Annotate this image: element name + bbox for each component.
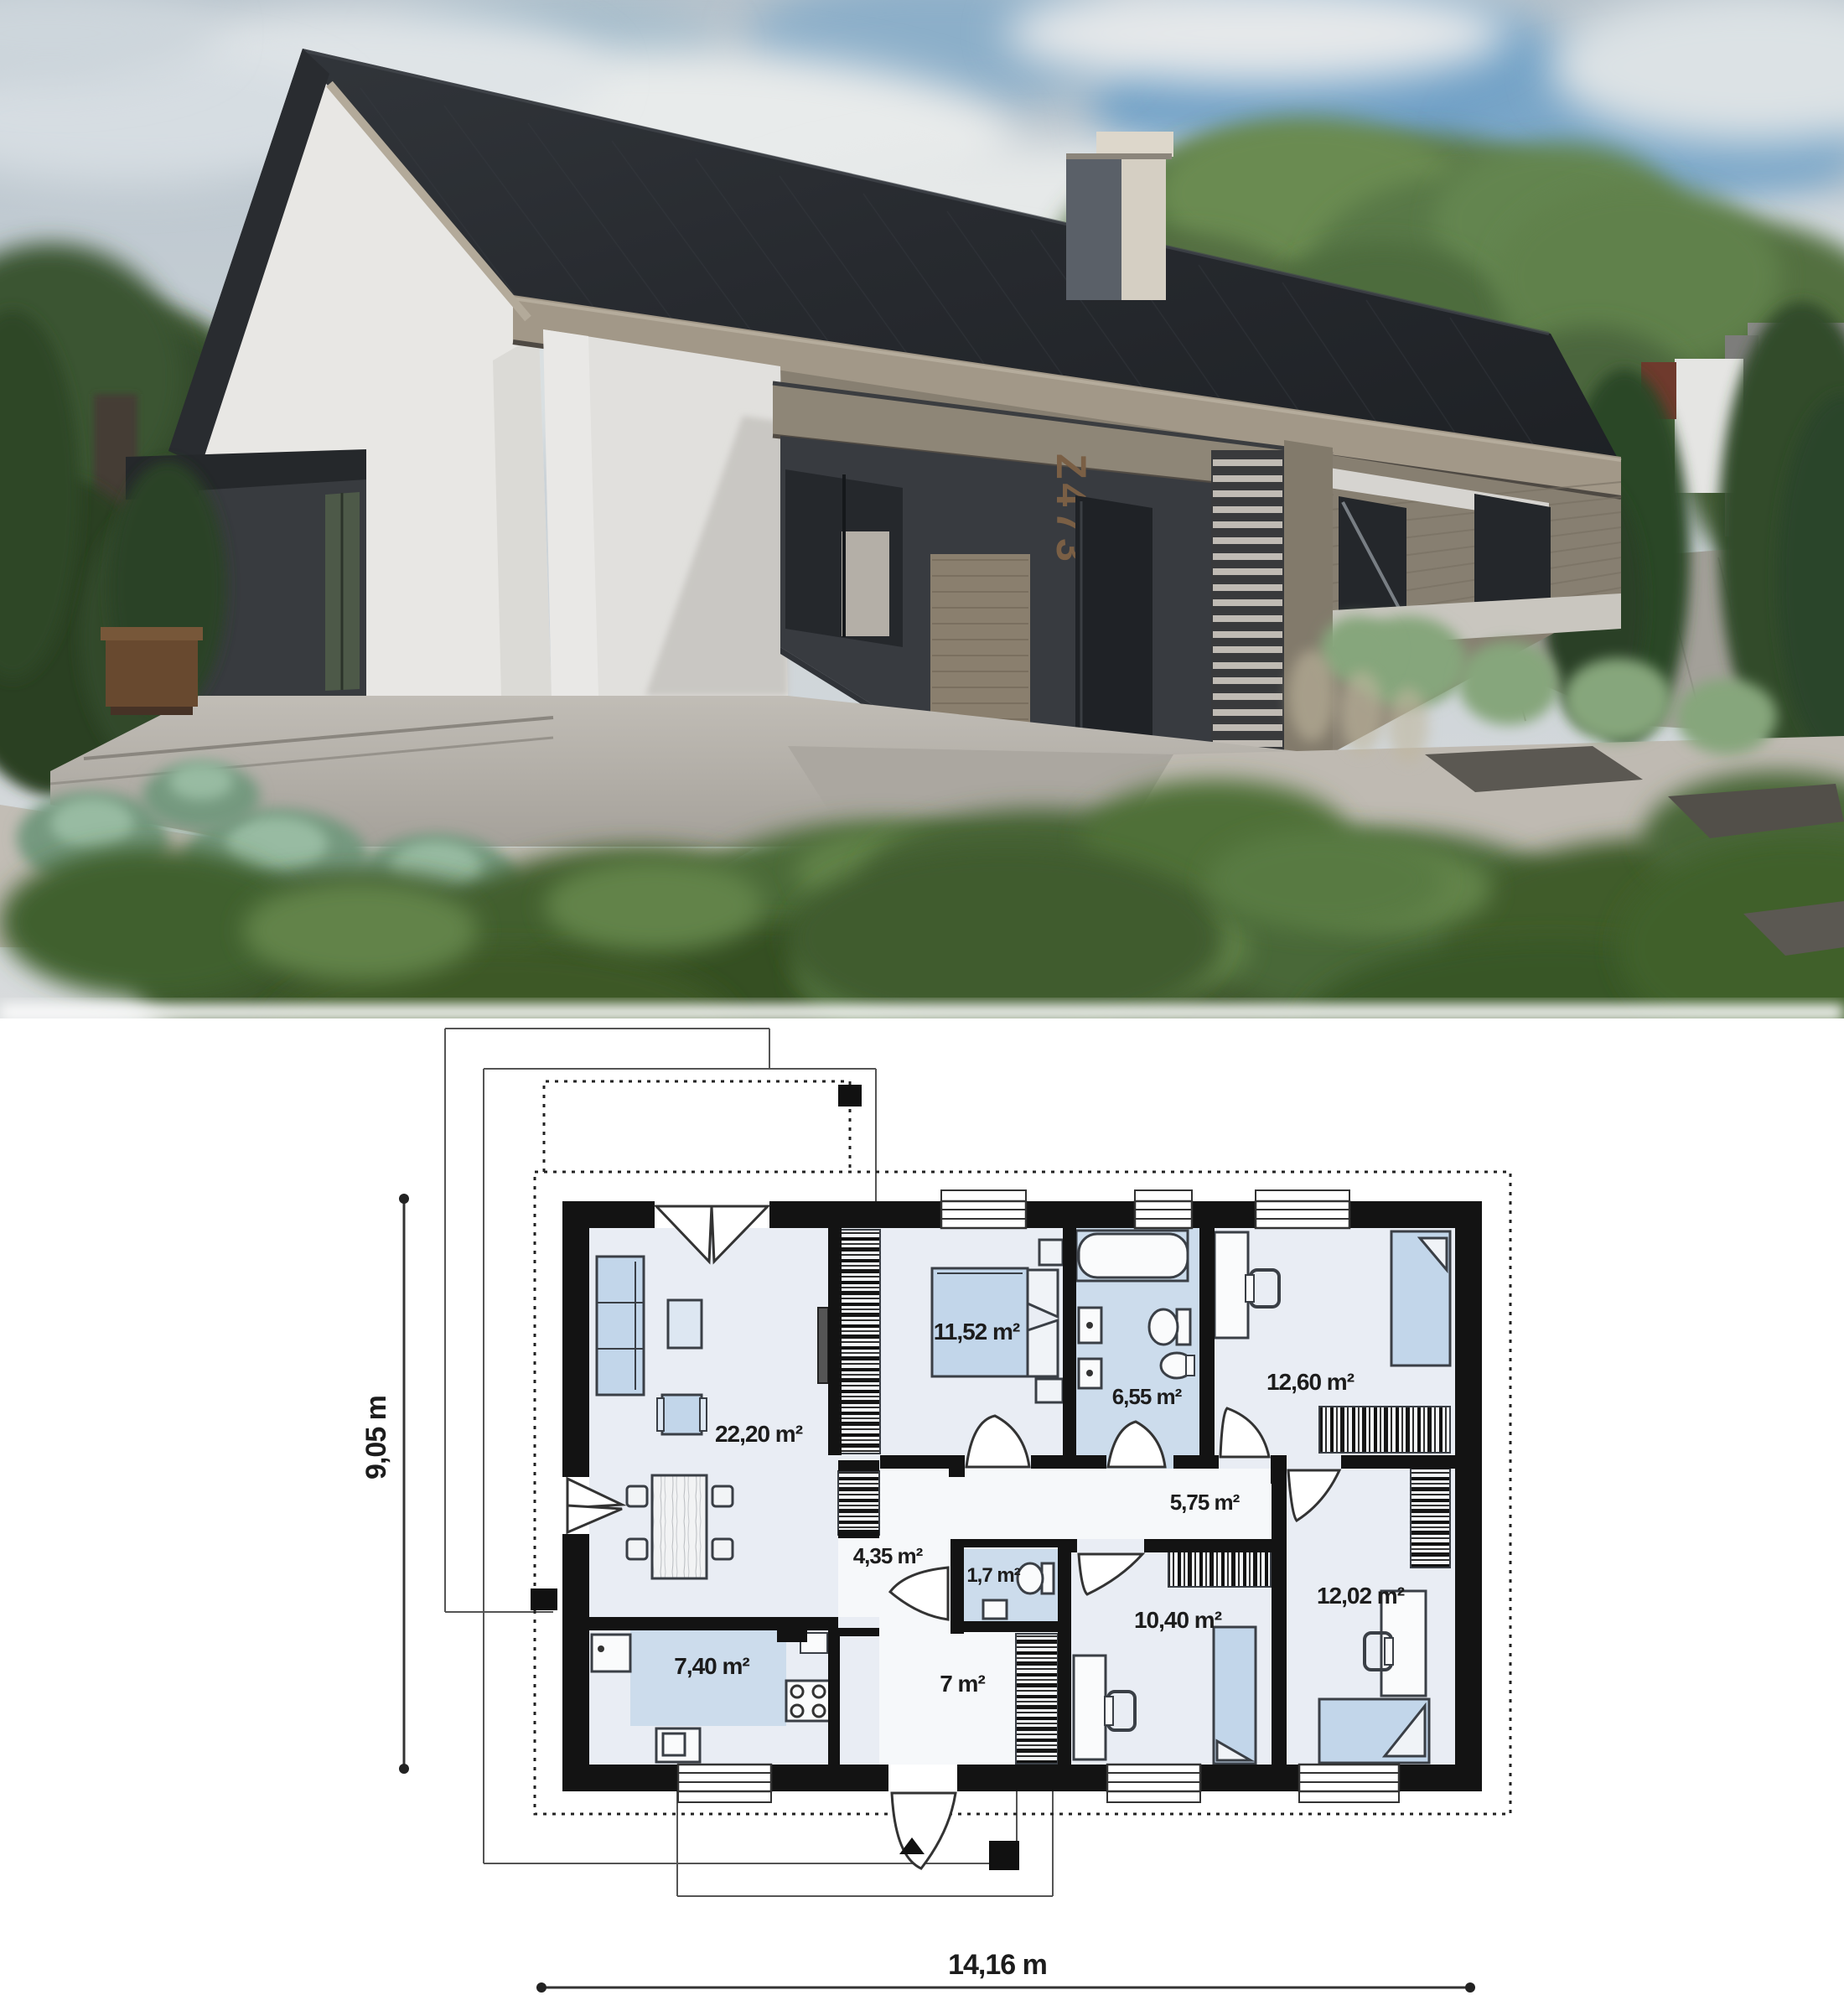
svg-text:7 m²: 7 m²: [940, 1671, 985, 1697]
svg-text:6,55 m²: 6,55 m²: [1112, 1384, 1183, 1409]
svg-text:10,40 m²: 10,40 m²: [1134, 1607, 1222, 1633]
svg-text:22,20 m²: 22,20 m²: [715, 1421, 803, 1447]
svg-text:7,40 m²: 7,40 m²: [674, 1653, 749, 1679]
svg-text:5,75 m²: 5,75 m²: [1170, 1490, 1241, 1515]
svg-text:12,60 m²: 12,60 m²: [1266, 1369, 1355, 1395]
svg-text:4,35 m²: 4,35 m²: [853, 1543, 924, 1568]
svg-text:1,7 m²: 1,7 m²: [966, 1564, 1020, 1587]
svg-text:11,52 m²: 11,52 m²: [934, 1319, 1020, 1345]
svg-text:12,02 m²: 12,02 m²: [1317, 1583, 1405, 1609]
svg-text:9,05 m: 9,05 m: [360, 1396, 392, 1480]
svg-text:14,16 m: 14,16 m: [948, 1949, 1047, 1981]
